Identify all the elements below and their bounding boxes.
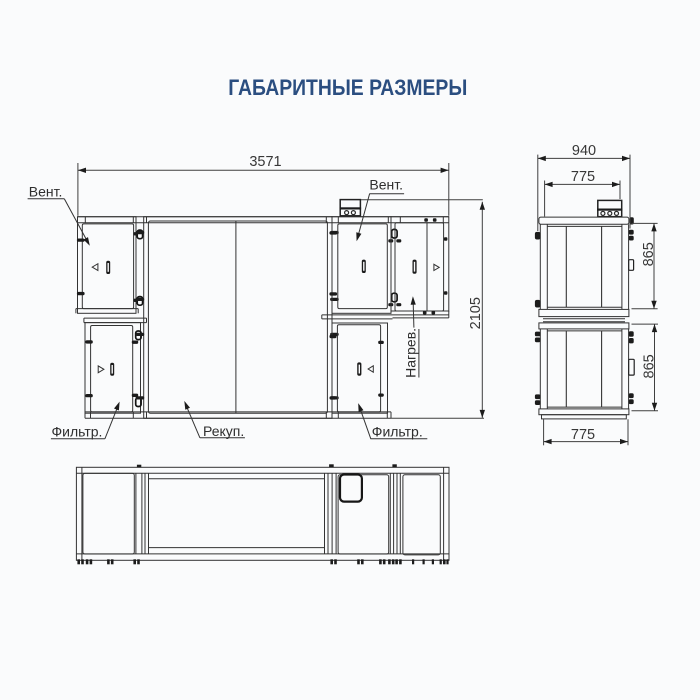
svg-text:2105: 2105 (468, 297, 484, 329)
svg-text:775: 775 (571, 427, 595, 443)
svg-text:Фильтр.: Фильтр. (52, 423, 103, 439)
svg-text:Вент.: Вент. (29, 183, 63, 199)
svg-text:865: 865 (641, 242, 657, 266)
svg-text:Вент.: Вент. (369, 176, 403, 192)
svg-text:865: 865 (641, 354, 657, 378)
svg-text:3571: 3571 (249, 154, 281, 170)
svg-text:ГАБАРИТНЫЕ РАЗМЕРЫ: ГАБАРИТНЫЕ РАЗМЕРЫ (228, 75, 467, 100)
svg-text:Нагрев.: Нагрев. (403, 328, 419, 378)
svg-text:Фильтр.: Фильтр. (372, 423, 423, 439)
svg-text:Рекуп.: Рекуп. (203, 423, 244, 439)
svg-text:940: 940 (572, 143, 596, 159)
svg-text:775: 775 (571, 169, 595, 185)
